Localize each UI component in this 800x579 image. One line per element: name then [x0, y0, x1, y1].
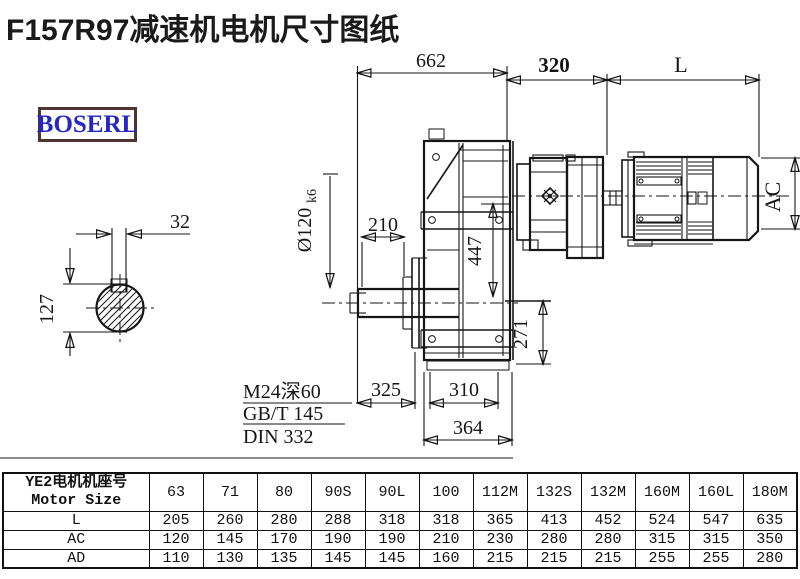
row-label-AC: AC [3, 530, 149, 549]
row-label-L: L [3, 511, 149, 530]
table-cell: 63 [149, 473, 203, 511]
table-row-AD: AD 110130135145145160215215215255255280 [3, 549, 797, 568]
table-header-row: YE2电机机座号 Motor Size 63718090S90L100112M1… [3, 473, 797, 511]
shaft-section-view: 32 127 [36, 211, 194, 356]
table-cell: 350 [743, 530, 797, 549]
dim-32: 32 [170, 211, 190, 233]
header-label-en: Motor Size [4, 492, 149, 510]
table-cell: 365 [473, 511, 527, 530]
row-label-AD: AD [3, 549, 149, 568]
table-cell: 190 [365, 530, 419, 549]
note-thread: M24深60 [243, 380, 321, 403]
table-cell: 288 [311, 511, 365, 530]
table-cell: 112M [473, 473, 527, 511]
table-row-AC: AC 120145170190190210230280280315315350 [3, 530, 797, 549]
table-cell: 130 [203, 549, 257, 568]
dim-127: 127 [36, 294, 58, 324]
dim-325: 325 [371, 379, 401, 401]
table-cell: 80 [257, 473, 311, 511]
table-cell: 547 [689, 511, 743, 530]
table-cell: 160L [689, 473, 743, 511]
table-cell: 120 [149, 530, 203, 549]
table-cell: 145 [203, 530, 257, 549]
table-cell: 280 [743, 549, 797, 568]
dim-310: 310 [449, 379, 479, 401]
table-cell: 160M [635, 473, 689, 511]
table-cell: 190 [311, 530, 365, 549]
header-label-cn: YE2电机机座号 [4, 474, 149, 492]
table-cell: 71 [203, 473, 257, 511]
table-cell: 315 [635, 530, 689, 549]
table-cell: 452 [581, 511, 635, 530]
table-cell: 280 [257, 511, 311, 530]
table-cell: 205 [149, 511, 203, 530]
dim-shaft-diameter: Ø120 [294, 208, 316, 252]
table-cell: 280 [527, 530, 581, 549]
base-flange [427, 361, 509, 370]
table-cell: 255 [635, 549, 689, 568]
table-cell: 215 [527, 549, 581, 568]
table-row-L: L 205260280288318318365413452524547635 [3, 511, 797, 530]
dim-271: 271 [510, 319, 532, 349]
table-cell: 318 [365, 511, 419, 530]
motor-size-table: YE2电机机座号 Motor Size 63718090S90L100112M1… [2, 472, 798, 569]
table-cell: 255 [689, 549, 743, 568]
note-din-standard: DIN 332 [243, 426, 314, 448]
dim-364: 364 [453, 417, 483, 439]
table-cell: 135 [257, 549, 311, 568]
dim-662: 662 [416, 50, 446, 72]
table-cell: 215 [581, 549, 635, 568]
drawing-page: F157R97减速机电机尺寸图纸 BOSERL [0, 0, 800, 579]
dim-L: L [674, 52, 687, 77]
table-cell: 132S [527, 473, 581, 511]
dimension-annotations: 662 320 L 210 Ø120 k6 447 271 325 310 36… [0, 50, 800, 458]
gearbox-view [322, 129, 518, 370]
table-cell: 230 [473, 530, 527, 549]
table-cell: 635 [743, 511, 797, 530]
dim-AC: AC [760, 182, 785, 213]
table-cell: 413 [527, 511, 581, 530]
motor-assembly-view [512, 141, 790, 360]
dim-210: 210 [368, 214, 398, 236]
table-cell: 215 [473, 549, 527, 568]
table-cell: 90S [311, 473, 365, 511]
table-cell: 210 [419, 530, 473, 549]
dim-shaft-tolerance: k6 [305, 189, 320, 203]
dim-447: 447 [464, 236, 486, 266]
table-cell: 145 [365, 549, 419, 568]
table-cell: 90L [365, 473, 419, 511]
table-cell: 170 [257, 530, 311, 549]
table-cell: 145 [311, 549, 365, 568]
table-cell: 110 [149, 549, 203, 568]
table-cell: 318 [419, 511, 473, 530]
table-cell: 260 [203, 511, 257, 530]
table-cell: 100 [419, 473, 473, 511]
table-cell: 524 [635, 511, 689, 530]
dim-320: 320 [538, 53, 570, 77]
table-cell: 160 [419, 549, 473, 568]
lifting-lug [429, 129, 444, 139]
table-header-label: YE2电机机座号 Motor Size [3, 473, 149, 511]
table-cell: 180M [743, 473, 797, 511]
table-cell: 315 [689, 530, 743, 549]
table-cell: 280 [581, 530, 635, 549]
note-gb-standard: GB/T 145 [243, 403, 323, 425]
table-cell: 132M [581, 473, 635, 511]
